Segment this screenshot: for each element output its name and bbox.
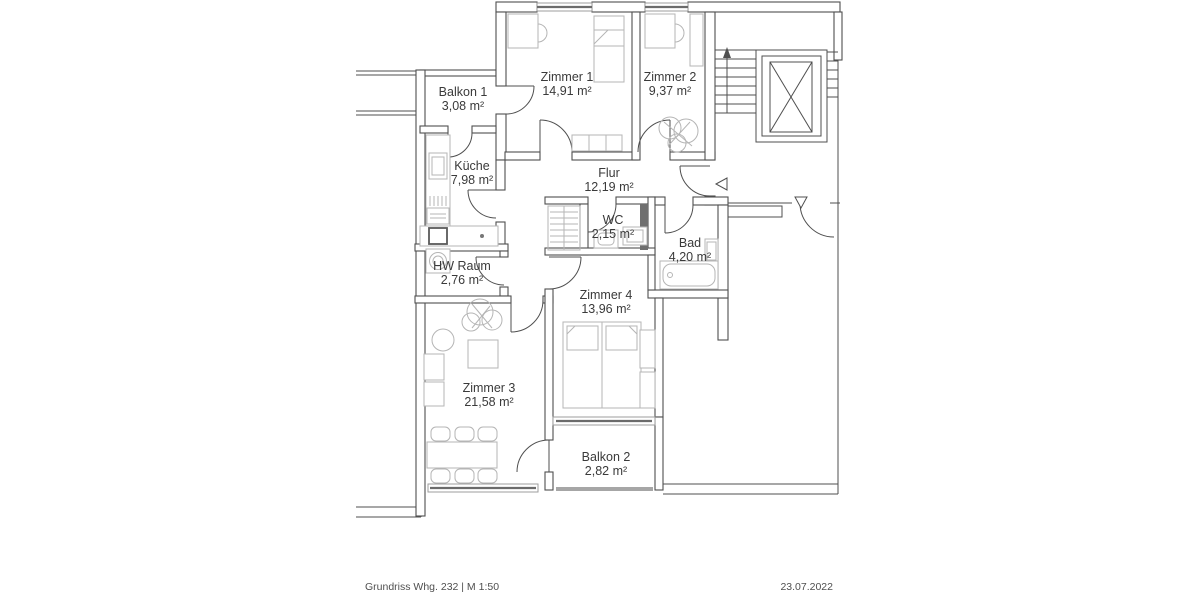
- room-label-hw-raum: HW Raum: [433, 259, 491, 273]
- room-area-zimmer-2: 9,37 m²: [649, 84, 691, 98]
- room-area-balkon-1: 3,08 m²: [442, 99, 484, 113]
- room-label-kueche: Küche: [454, 159, 489, 173]
- furniture-zimmer4: [563, 322, 655, 408]
- plant-icon: [659, 117, 698, 152]
- room-area-balkon-2: 2,82 m²: [585, 464, 627, 478]
- room-label-bad: Bad: [679, 236, 701, 250]
- room-label-flur: Flur: [598, 166, 620, 180]
- elevator: [756, 50, 827, 142]
- room-label-zimmer-4: Zimmer 4: [580, 288, 633, 302]
- neighbor-down-triangle-icon: [795, 197, 807, 208]
- title-block-left: Grundriss Whg. 232 | M 1:50: [365, 581, 499, 593]
- room-label-wc: WC: [603, 213, 624, 227]
- room-area-hw-raum: 2,76 m²: [441, 273, 483, 287]
- room-area-flur: 12,19 m²: [584, 180, 633, 194]
- room-label-zimmer-2: Zimmer 2: [644, 70, 697, 84]
- room-label-balkon-2: Balkon 2: [582, 450, 631, 464]
- room-area-zimmer-1: 14,91 m²: [542, 84, 591, 98]
- wc-closet: [548, 206, 580, 250]
- room-area-bad: 4,20 m²: [669, 250, 711, 264]
- plant-icon: [462, 299, 502, 331]
- entry-left-triangle-icon: [716, 178, 727, 190]
- room-area-zimmer-3: 21,58 m²: [464, 395, 513, 409]
- room-area-zimmer-4: 13,96 m²: [581, 302, 630, 316]
- floor-plan-page: Balkon 1 3,08 m² Zimmer 1 14,91 m² Zimme…: [0, 0, 1200, 600]
- room-area-wc: 2,15 m²: [592, 227, 634, 241]
- room-area-kueche: 7,98 m²: [451, 173, 493, 187]
- room-label-zimmer-3: Zimmer 3: [463, 381, 516, 395]
- floor-plan-svg: Balkon 1 3,08 m² Zimmer 1 14,91 m² Zimme…: [0, 0, 1200, 600]
- stair-up-arrow-icon: [723, 47, 731, 58]
- title-block-date: 23.07.2022: [780, 581, 833, 593]
- room-label-balkon-1: Balkon 1: [439, 85, 488, 99]
- room-label-zimmer-1: Zimmer 1: [541, 70, 594, 84]
